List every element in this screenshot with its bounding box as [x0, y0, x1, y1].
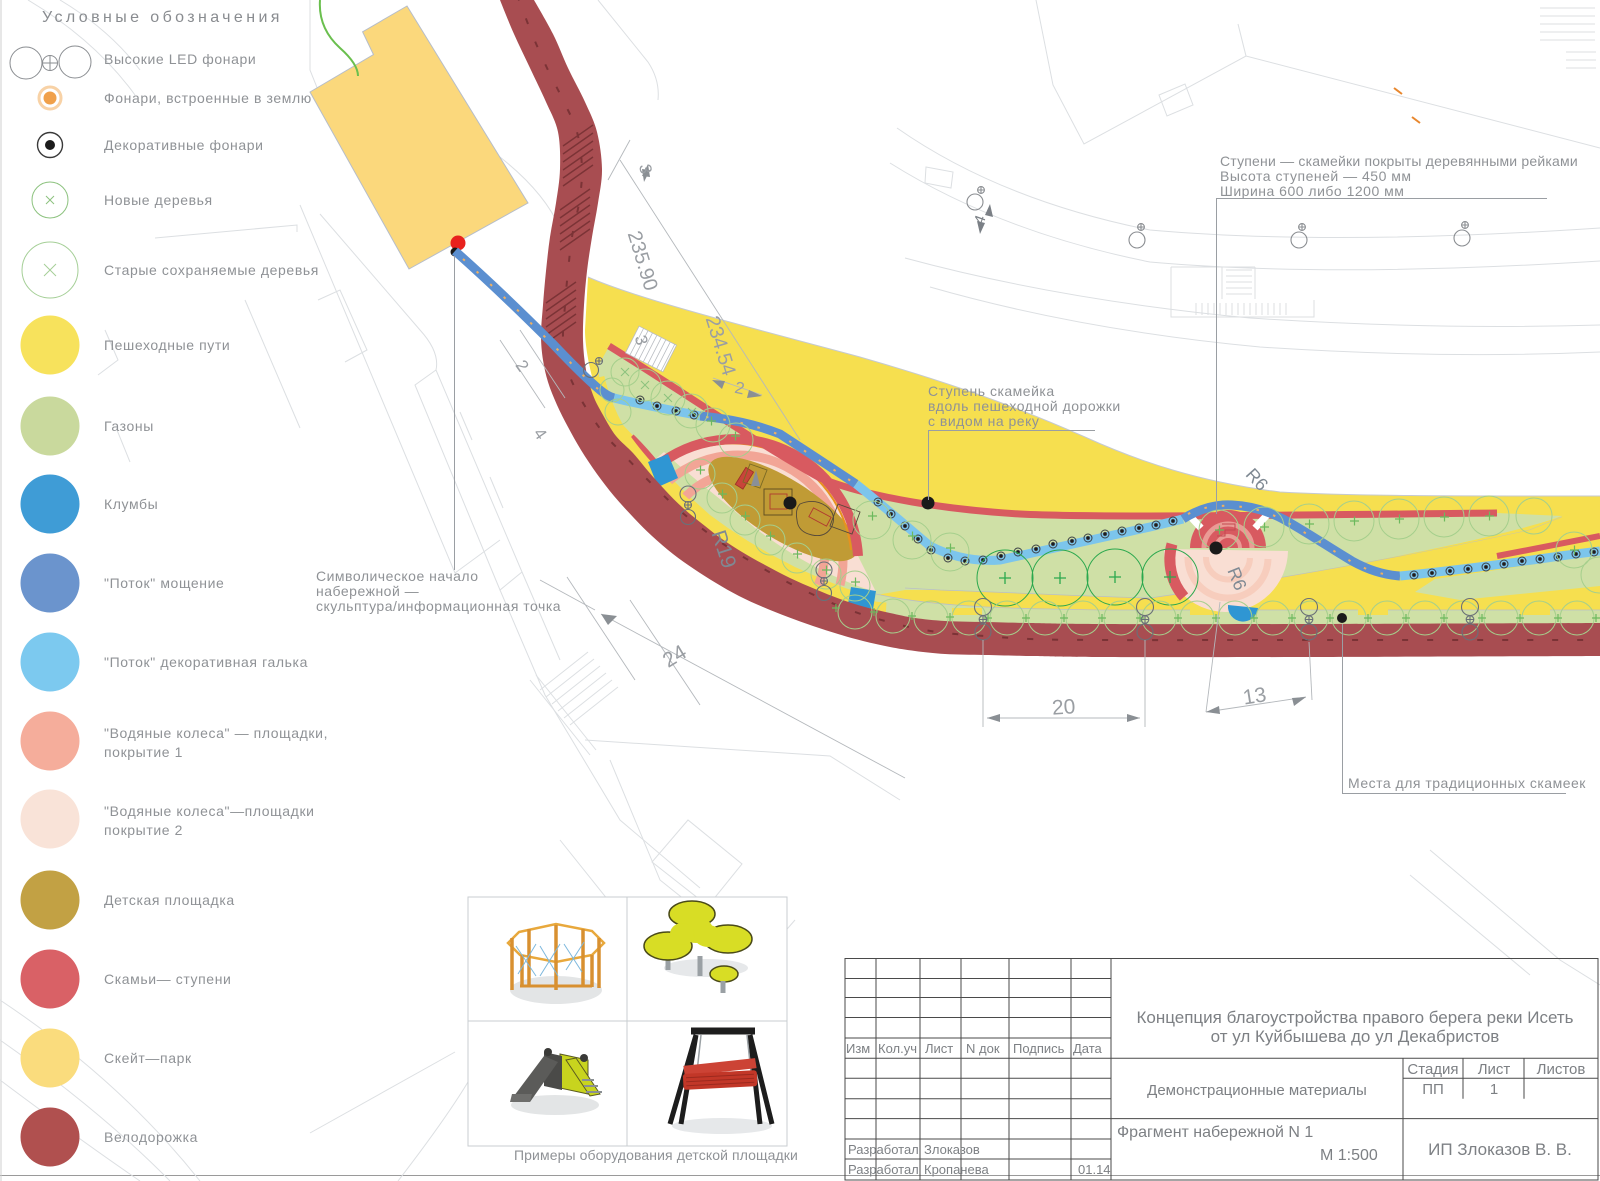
svg-text:01.14: 01.14 — [1078, 1162, 1111, 1177]
svg-text:"Водяные колеса"—площадки: "Водяные колеса"—площадки — [104, 803, 315, 819]
svg-text:Кол.уч: Кол.уч — [878, 1041, 917, 1056]
svg-text:Примеры оборудования детской: Примеры оборудования детской площадки — [514, 1147, 798, 1163]
svg-text:"Поток" декоративная галька: "Поток" декоративная галька — [104, 654, 308, 670]
svg-text:Кропанева: Кропанева — [924, 1162, 989, 1177]
svg-text:Символическое начало: Символическое начало — [316, 568, 479, 584]
svg-text:Велодорожка: Велодорожка — [104, 1129, 198, 1145]
svg-text:Скейт—парк: Скейт—парк — [104, 1050, 192, 1066]
svg-text:Злоказов: Злоказов — [924, 1142, 980, 1157]
svg-text:Газоны: Газоны — [104, 418, 154, 434]
svg-text:Лист: Лист — [925, 1041, 953, 1056]
svg-text:ПП: ПП — [1422, 1081, 1444, 1098]
svg-text:М 1:500: М 1:500 — [1320, 1147, 1378, 1164]
svg-text:Разработал: Разработал — [848, 1162, 919, 1177]
svg-text:Лист: Лист — [1478, 1061, 1511, 1078]
svg-text:Подпись: Подпись — [1013, 1041, 1065, 1056]
svg-text:Ступени — скамейки покрыты: Ступени — скамейки покрыты деревянными р… — [1220, 153, 1578, 169]
svg-text:Пешеходные пути: Пешеходные пути — [104, 337, 230, 353]
svg-text:от ул Куйбышева до ул Дек: от ул Куйбышева до ул Декабристов — [1211, 1027, 1500, 1046]
svg-text:Фрагмент набережной N 1: Фрагмент набережной N 1 — [1117, 1124, 1313, 1141]
svg-text:Разработал: Разработал — [848, 1142, 919, 1157]
svg-text:покрытие 1: покрытие 1 — [104, 744, 183, 760]
svg-text:N док: N док — [966, 1041, 1000, 1056]
svg-text:20: 20 — [1051, 695, 1076, 720]
svg-text:ИП Злоказов В. В.: ИП Злоказов В. В. — [1428, 1140, 1572, 1159]
svg-text:Ступень скамейка: Ступень скамейка — [928, 383, 1055, 399]
svg-text:13: 13 — [1241, 683, 1268, 709]
svg-text:Дата: Дата — [1073, 1041, 1103, 1056]
svg-text:Условные обозначения: Условные обозначения — [42, 9, 283, 26]
svg-text:1: 1 — [1490, 1081, 1498, 1098]
svg-text:Высота ступеней — 450 мм: Высота ступеней — 450 мм — [1220, 168, 1412, 184]
svg-text:Новые деревья: Новые деревья — [104, 192, 213, 208]
svg-text:Демонстрационные материалы: Демонстрационные материалы — [1147, 1082, 1367, 1099]
svg-text:Скамьи— ступени: Скамьи— ступени — [104, 971, 231, 987]
svg-text:Клумбы: Клумбы — [104, 496, 158, 512]
svg-text:Фонари, встроенные в землю: Фонари, встроенные в землю — [104, 90, 312, 106]
svg-text:"Водяные колеса" — площадки: "Водяные колеса" — площадки, — [104, 725, 328, 741]
svg-text:Детская площадка: Детская площадка — [104, 892, 235, 908]
svg-text:вдоль пешеходной дорожки: вдоль пешеходной дорожки — [928, 398, 1121, 414]
svg-text:Листов: Листов — [1537, 1061, 1586, 1078]
svg-text:"Поток" мощение: "Поток" мощение — [104, 575, 224, 591]
svg-text:скульптура/информационная точ: скульптура/информационная точка — [316, 598, 561, 614]
svg-text:покрытие 2: покрытие 2 — [104, 822, 183, 838]
svg-text:с видом на реку: с видом на реку — [928, 413, 1039, 429]
svg-text:Стадия: Стадия — [1407, 1061, 1458, 1078]
svg-text:Изм: Изм — [846, 1041, 870, 1056]
svg-text:Старые сохраняемые деревья: Старые сохраняемые деревья — [104, 262, 319, 278]
svg-text:Ширина 600 либо 1200 мм: Ширина 600 либо 1200 мм — [1220, 183, 1404, 199]
svg-text:Декоративные фонари: Декоративные фонари — [104, 137, 264, 153]
svg-text:Высокие LED фонари: Высокие LED фонари — [104, 51, 256, 67]
svg-text:Места для традиционных скам: Места для традиционных скамеек — [1348, 775, 1586, 791]
svg-text:набережной —: набережной — — [316, 583, 419, 599]
svg-text:Концепция благоустройства пр: Концепция благоустройства правого берега… — [1136, 1008, 1573, 1027]
